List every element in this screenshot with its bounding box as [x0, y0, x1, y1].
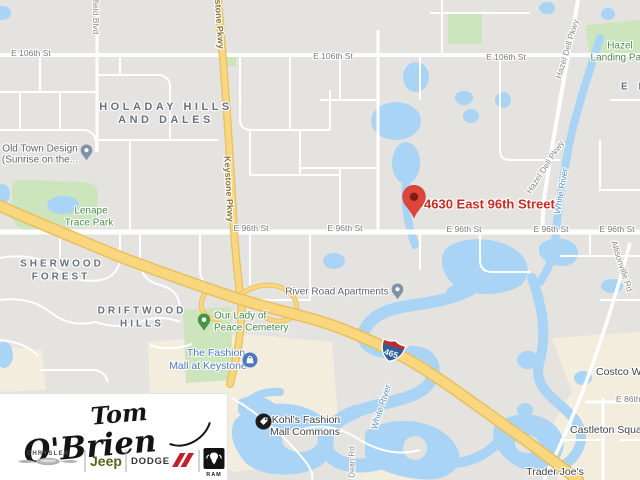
poi-label-castleton-square: Castleton Square: [570, 424, 640, 436]
poi-label-cemetery-line1: Our Lady of: [214, 311, 266, 322]
park-label-hazel-landing-line1: Hazel: [607, 41, 633, 52]
chrysler-wordmark: CHRYSLER: [27, 451, 69, 457]
neighborhood-label-driftwood-line2: HILLS: [120, 319, 164, 330]
logo-flourish: [168, 422, 212, 446]
map[interactable]: E 106th St E 106th St E 106th St E 96th …: [0, 0, 640, 480]
fashion-mall-poi-icon[interactable]: [242, 352, 258, 368]
dodge-wordmark: DODGE: [131, 456, 170, 467]
river-road-apartments-poi-pin-icon[interactable]: [391, 283, 404, 300]
street-label-e96th: E 96th St: [534, 224, 569, 234]
park-label-lenape-line2: Trace Park: [65, 218, 114, 229]
street-label-e86th: E 86th St: [616, 394, 640, 404]
poi-label-fashion-mall-line1: The Fashion: [187, 347, 245, 359]
street-label-e106th: E 106th St: [11, 48, 51, 58]
kohls-poi-icon[interactable]: [255, 413, 272, 430]
cemetery-poi-pin-icon[interactable]: [197, 313, 211, 332]
street-label-e106th: E 106th St: [313, 51, 353, 61]
poi-label-kohls-line2: Mall Commons: [270, 426, 340, 438]
street-label-e106th: E 106th St: [486, 52, 526, 62]
poi-label-cemetery-line2: Peace Cemetery: [214, 323, 288, 334]
park-label-hazel-landing-line2: Landing Park: [591, 53, 640, 64]
poi-label-old-town-line1: Old Town Design: [2, 144, 77, 155]
poi-label-old-town-line2: (Sunrise on the...: [2, 155, 78, 166]
neighborhood-label-sherwood-line2: FOREST: [32, 272, 91, 283]
jeep-wordmark: Jeep: [90, 453, 122, 469]
ram-wordmark: RAM: [206, 472, 222, 478]
road-label-dean-rd: Dean Rd: [348, 446, 357, 478]
street-label-e96th: E 96th St: [328, 223, 363, 233]
poi-label-costco: Costco Wholesale: [596, 366, 640, 378]
neighborhood-label-partial: E L: [621, 82, 640, 93]
neighborhood-label-driftwood-line1: DRIFTWOOD: [98, 306, 187, 317]
poi-label-fashion-mall-line2: Mall at Keystone: [169, 360, 247, 372]
poi-label-kohls-line1: Kohl's Fashion: [272, 414, 341, 426]
dealership-logo-art: Tom O'Brien CHRYSLER Jeep DODGE: [0, 394, 227, 480]
street-label-e96th: E 96th St: [447, 224, 482, 234]
neighborhood-label-holaday-line1: HOLADAY HILLS: [99, 101, 233, 113]
marker-address-label: 4630 East 96th Street: [424, 197, 555, 212]
ram-brand-logo: RAM: [204, 448, 225, 478]
park-label-lenape-line1: Lenape: [74, 206, 107, 217]
dodge-slashes-icon: [172, 453, 194, 467]
dealership-logo: Tom O'Brien CHRYSLER Jeep DODGE: [0, 393, 228, 480]
street-label-e96th: E 96th St: [600, 224, 635, 234]
road-label-westfield-blvd: field Blvd: [91, 0, 101, 34]
old-town-poi-pin-icon[interactable]: [80, 144, 93, 161]
neighborhood-label-holaday-line2: AND DALES: [118, 114, 214, 126]
neighborhood-label-sherwood-line1: SHERWOOD: [20, 259, 104, 270]
poi-label-trader-joes: Trader Joe's: [526, 466, 584, 478]
poi-label-river-road-apartments: River Road Apartments: [285, 287, 388, 298]
street-label-e96th: E 96th St: [234, 223, 269, 233]
